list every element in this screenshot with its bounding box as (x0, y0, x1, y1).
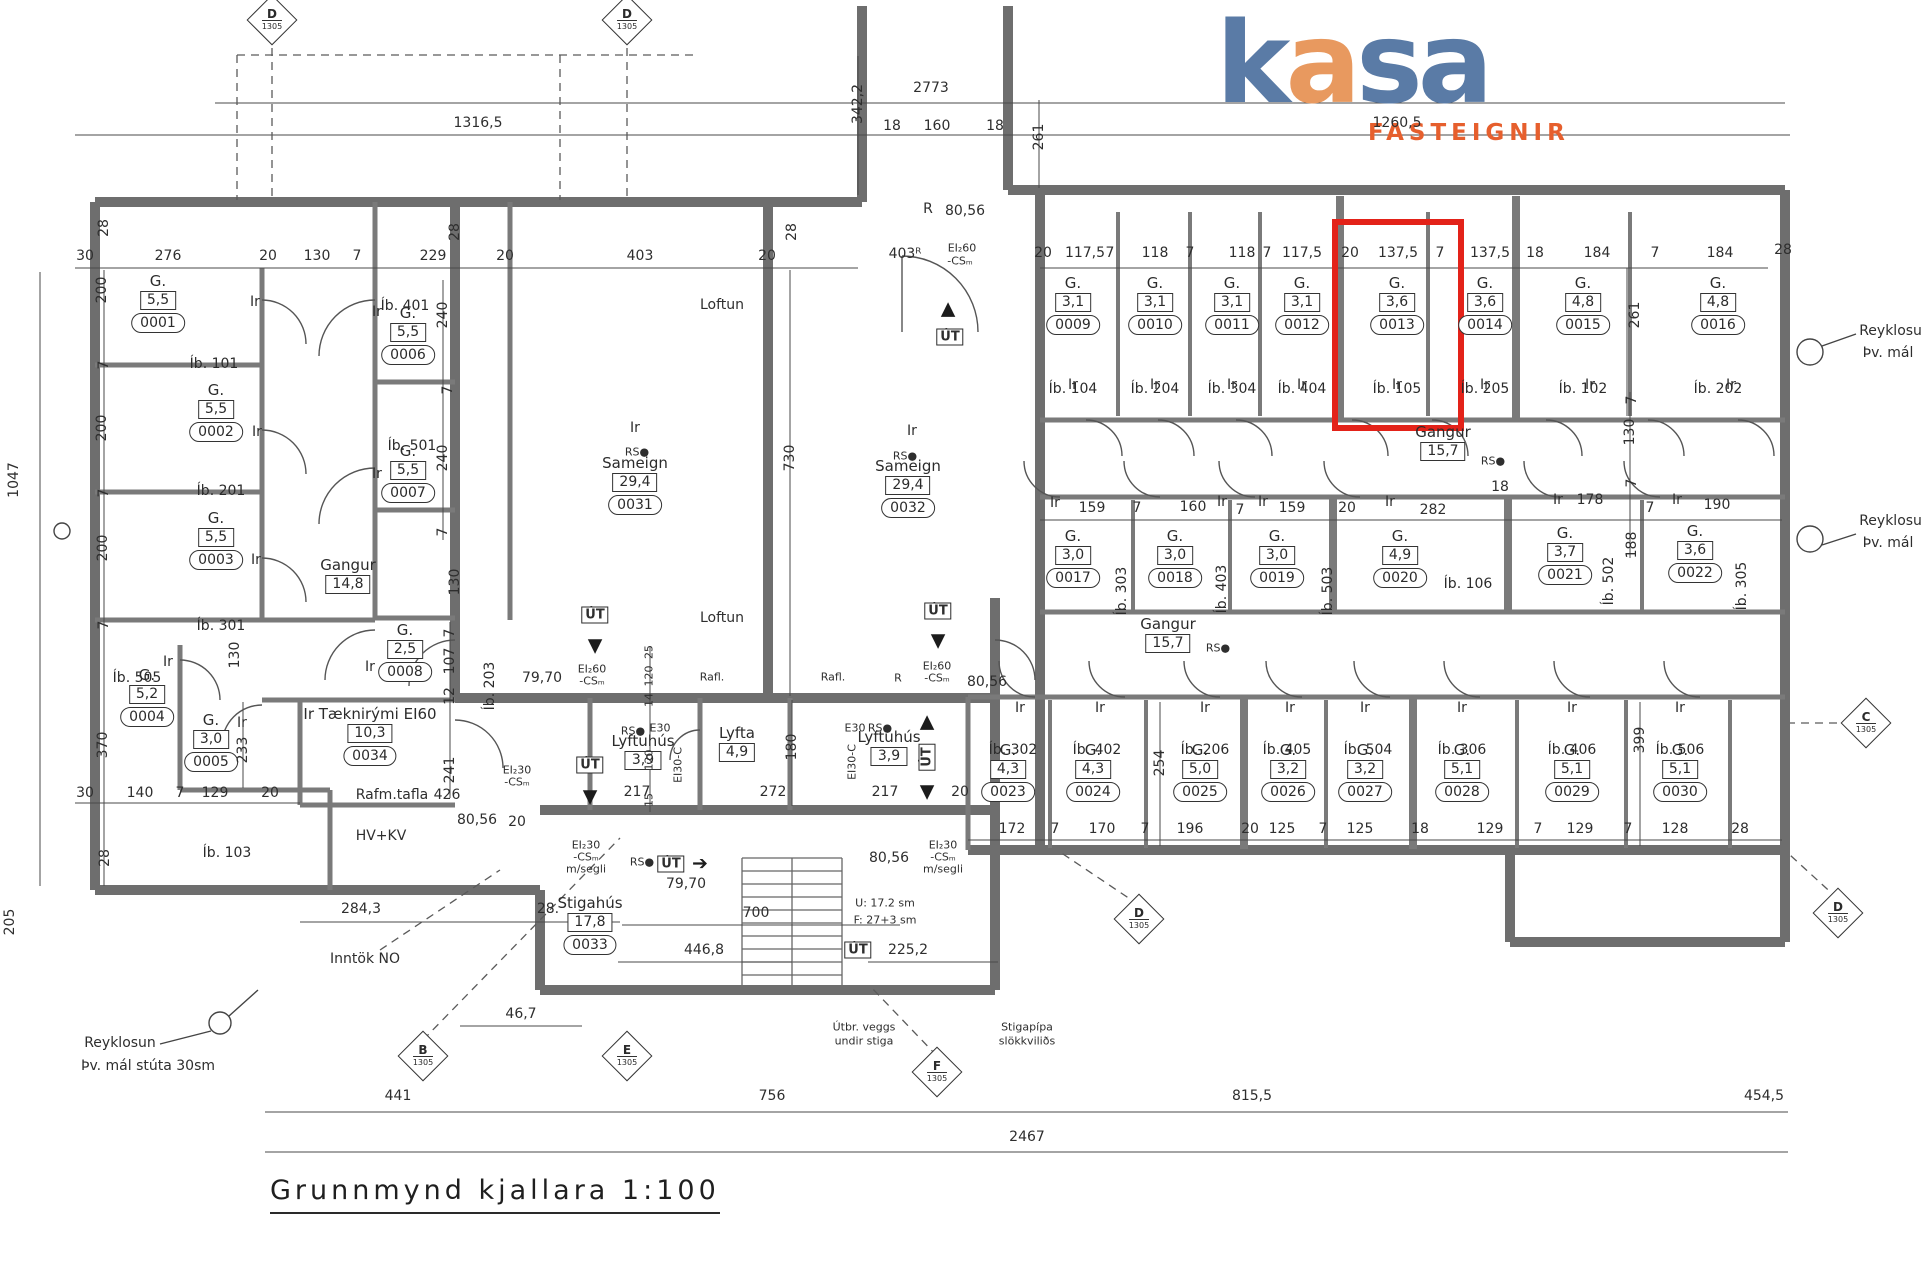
unit-sublabel: Íb. 206 (1181, 742, 1230, 758)
dimension-label: 180 (785, 734, 799, 761)
dimension-label: 25 (644, 645, 655, 659)
stair-treads (742, 858, 842, 985)
dimension-label: 30 (76, 786, 94, 800)
unit-sublabel: 0010 (1128, 315, 1182, 335)
unit-sublabel: 5,5 (390, 461, 426, 480)
unit-sublabel: Íb. 401 (381, 298, 430, 314)
annotation-label: ▼ (931, 632, 946, 651)
dimension-label: 15 (644, 793, 655, 807)
unit-sublabel: G. (131, 274, 185, 289)
marker-text: B1305 (406, 1039, 440, 1073)
dimension-label: 200 (95, 415, 109, 442)
dimension-label: 7 (1646, 501, 1655, 515)
annotation-label: -CSₘ (573, 852, 599, 863)
unit-sublabel: 0012 (1275, 315, 1329, 335)
dimension-label: 7 (1133, 501, 1142, 515)
annotation-label: Rafm.tafla (356, 788, 428, 802)
storage-unit-0023: G.4,30023Íb. 302 (981, 743, 1035, 802)
annotation-label: Inntök NO (330, 952, 400, 966)
dimension-label: 18 (986, 119, 1004, 133)
annotation-label: -CSₘ (579, 676, 605, 687)
marker-text: 1305 (927, 1072, 947, 1083)
dimension-label: 240 (436, 445, 450, 472)
annotation-label: E30 (845, 723, 866, 734)
dimension-label: 205 (3, 909, 17, 936)
storage-unit-0002: G.5,50002Íb. 201 (189, 383, 243, 442)
unit-sublabel: Íb. 503 (1320, 566, 1336, 615)
exit-label: ÚT (657, 856, 684, 873)
dimension-label: 178 (1577, 493, 1604, 507)
logo-letter: k (1216, 0, 1285, 129)
dimension-label: 7 (1106, 246, 1115, 260)
annotation-label: R (923, 202, 933, 216)
annotation-label: RS● (630, 857, 654, 868)
zone-sublabel: 17,8 (567, 913, 612, 932)
dimension-label: 80,56 (967, 675, 1007, 689)
unit-sublabel: Íb. 101 (190, 356, 239, 372)
annotation-label: ▲ (920, 713, 935, 732)
dimension-label: 229 (420, 249, 447, 263)
marker-text: D (622, 9, 632, 20)
annotation-label: Reyklosun (1859, 324, 1921, 338)
annotation-label: EI30-C (673, 747, 684, 783)
dimension-label: 118 (1142, 246, 1169, 260)
dimension-label: 18 (883, 119, 901, 133)
annotation-label: Reyklosun (84, 1036, 156, 1050)
dimension-label: 120 (644, 750, 655, 771)
dimension-label: 46,7 (505, 1007, 536, 1021)
marker-text: 1305 (617, 1056, 637, 1067)
annotation-label: EI₂60 (578, 664, 607, 675)
exit-label: ÚT (924, 603, 951, 620)
exit-label: ÚT (576, 757, 603, 774)
unit-sublabel: 3,0 (1157, 546, 1193, 565)
unit-sublabel: G. (1046, 276, 1100, 291)
unit-sublabel: Íb. 502 (1601, 556, 1617, 605)
storage-unit-0005: G.3,00005Íb. 103 (184, 713, 238, 772)
ir-mark: Ir (1457, 701, 1467, 715)
zone-sublabel: Ir Tæknirými EI60 (303, 706, 436, 722)
unit-sublabel: Íb. 406 (1548, 742, 1597, 758)
storage-unit-0009: G.3,10009Íb. 104 (1046, 276, 1100, 335)
dimension-label: 79,70 (522, 671, 562, 685)
ir-mark: Ir (1285, 701, 1295, 715)
dimension-label: 12 (443, 687, 457, 705)
dimension-label: 7 (1624, 822, 1633, 836)
dimension-label: 130 (304, 249, 331, 263)
unit-sublabel: 3,1 (1214, 293, 1250, 312)
unit-sublabel: 0023 (981, 782, 1035, 802)
dimension-label: 117,5 (1282, 246, 1322, 260)
unit-sublabel: Íb. 504 (1344, 742, 1393, 758)
annotation-label: EI₂30 (929, 840, 958, 851)
ir-mark: Ir (163, 655, 173, 669)
annotation-label: RS● (625, 447, 649, 458)
storage-unit-0022: G.3,60022Íb. 305 (1668, 524, 1722, 583)
marker-text: D1305 (1122, 902, 1156, 936)
unit-sublabel: G. (189, 383, 243, 398)
storage-unit-0030: G.5,10030Íb. 506 (1653, 743, 1707, 802)
unit-sublabel: G. (1250, 529, 1304, 544)
storage-unit-0026: G.3,20026Íb. 405 (1261, 743, 1315, 802)
zone-stigah-s-0033: Stigahús17,80033 (557, 895, 622, 955)
unit-sublabel: 0020 (1373, 568, 1427, 588)
unit-sublabel: 0002 (189, 422, 243, 442)
unit-sublabel: 0022 (1668, 563, 1722, 583)
ir-mark: Ir (251, 553, 261, 567)
dimension-label: 200 (96, 535, 110, 562)
zone-sublabel: 4,9 (719, 743, 755, 762)
storage-unit-0024: G.4,30024Íb. 402 (1066, 743, 1120, 802)
marker-text: C1305 (1849, 706, 1883, 740)
dimension-label: 7 (353, 249, 362, 263)
logo-letter: a (1285, 0, 1356, 129)
unit-sublabel: G. (1046, 529, 1100, 544)
logo-letter: s (1356, 0, 1418, 129)
unit-sublabel: 0008 (378, 662, 432, 682)
storage-unit-0025: G.5,00025Íb. 206 (1173, 743, 1227, 802)
dimension-label: 276 (155, 249, 182, 263)
unit-sublabel: 0014 (1458, 315, 1512, 335)
dimension-label: 129 (1477, 822, 1504, 836)
exit-label: ÚT (581, 607, 608, 624)
unit-sublabel: 3,0 (1055, 546, 1091, 565)
unit-sublabel: Íb. 403 (1214, 564, 1230, 613)
unit-sublabel: 0005 (184, 752, 238, 772)
dimension-label: 184 (1707, 246, 1734, 260)
exit-label: ÚT (844, 942, 871, 959)
dimension-label: 7 (97, 361, 111, 370)
ir-mark: Ir (1585, 378, 1595, 392)
dimension-label: 282 (1420, 503, 1447, 517)
dimension-label: 217 (872, 785, 899, 799)
dimension-label: 399 (1633, 727, 1647, 754)
unit-sublabel: 0013 (1370, 315, 1424, 335)
unit-sublabel: 3,1 (1284, 293, 1320, 312)
annotation-label: RS● (1206, 643, 1230, 654)
zone-sameign-0031: Sameign29,40031 (602, 455, 668, 515)
zone-sameign-0032: Sameign29,40032 (875, 458, 941, 518)
dimension-label: 233 (236, 737, 250, 764)
unit-sublabel: G. (1668, 524, 1722, 539)
annotation-label: RS● (1481, 456, 1505, 467)
dimension-label: 20 (951, 785, 969, 799)
ir-mark: Ir (250, 295, 260, 309)
marker-text: F (933, 1061, 941, 1072)
annotation-label: m/segli (566, 864, 606, 875)
unit-sublabel: Íb. 303 (1114, 566, 1130, 615)
storage-unit-0001: G.5,50001Íb. 101 (131, 274, 185, 333)
unit-sublabel: 4,8 (1700, 293, 1736, 312)
annotation-label: U: 17.2 sm (855, 898, 915, 909)
unit-sublabel: 4,8 (1565, 293, 1601, 312)
ir-mark: Ir (252, 425, 262, 439)
marker-text: 1305 (1129, 919, 1149, 930)
unit-sublabel: 0019 (1250, 568, 1304, 588)
unit-sublabel: 5,5 (140, 291, 176, 310)
annotation-label: Útbr. veggs (833, 1022, 896, 1033)
dimension-label: 28 (1774, 243, 1792, 257)
dimension-label: 7 (1625, 479, 1639, 488)
zone-gangur: Gangur15,7 (1415, 424, 1471, 461)
dimension-label: 7 (436, 528, 450, 537)
ir-mark: Ir (365, 660, 375, 674)
ir-mark: Ir (630, 421, 640, 435)
unit-sublabel: 3,6 (1379, 293, 1415, 312)
marker-text: 1305 (262, 20, 282, 31)
dimension-label: 1047 (7, 462, 21, 498)
ir-mark: Ir (1227, 378, 1237, 392)
ir-mark: Ir (1217, 495, 1227, 509)
annotation-label: Rafl. (821, 672, 846, 683)
dimension-label: 28 (1731, 822, 1749, 836)
unit-sublabel: G. (189, 511, 243, 526)
unit-sublabel: 0017 (1046, 568, 1100, 588)
unit-sublabel: 5,5 (198, 528, 234, 547)
storage-unit-0020: G.4,90020Íb. 106 (1373, 529, 1427, 588)
ir-mark: Ir (907, 424, 917, 438)
annotation-label: EI₂60 (923, 661, 952, 672)
marker-text: F1305 (920, 1055, 954, 1089)
annotation-label: Reyklosun (1859, 514, 1921, 528)
zone-sublabel: 10,3 (347, 724, 392, 743)
annotation-label: -CSₘ (930, 852, 956, 863)
annotation-label: ▲ (941, 300, 956, 319)
annotation-label: ▼ (920, 783, 935, 802)
dimension-label: 170 (1089, 822, 1116, 836)
dimension-label: 140 (127, 786, 154, 800)
unit-sublabel: 0021 (1538, 565, 1592, 585)
marker-text: E1305 (610, 1039, 644, 1073)
dimension-label: 254 (1153, 750, 1167, 777)
unit-sublabel: 0027 (1338, 782, 1392, 802)
dimension-label: 730 (783, 445, 797, 472)
unit-sublabel: 3,1 (1055, 293, 1091, 312)
ir-mark: Ir (372, 305, 382, 319)
dimension-label: 7 (443, 629, 457, 638)
dimension-label: 120 (644, 666, 655, 687)
unit-sublabel: Íb. 405 (1263, 742, 1312, 758)
zone-sublabel: 15,7 (1420, 442, 1465, 461)
storage-unit-0017: G.3,00017Íb. 303 (1046, 529, 1100, 588)
dimension-label: 7 (1141, 822, 1150, 836)
dimension-label: 261 (1032, 124, 1046, 151)
unit-sublabel: 0018 (1148, 568, 1202, 588)
dimension-label: 700 (743, 906, 770, 920)
annotation-label: undir stiga (835, 1036, 894, 1047)
dimension-label: 137,5 (1470, 246, 1510, 260)
unit-sublabel: Íb. 102 (1559, 381, 1608, 397)
unit-sublabel: 5,1 (1662, 760, 1698, 779)
storage-unit-0016: G.4,80016Íb. 202 (1691, 276, 1745, 335)
ir-mark: Ir (1360, 701, 1370, 715)
annotation-label: ▼ (588, 637, 603, 656)
dimension-label: 7 (441, 386, 455, 395)
dimension-label: 28. (537, 902, 559, 916)
annotation-label: EI30-C (847, 744, 858, 780)
dimension-label: 20 (1338, 501, 1356, 515)
ir-mark: Ir (1567, 701, 1577, 715)
marker-text: D1305 (1821, 896, 1855, 930)
dimension-label: 7 (1051, 822, 1060, 836)
dimension-label: 240 (436, 302, 450, 329)
zone-sublabel: 0032 (881, 498, 935, 518)
unit-sublabel: Íb. 301 (197, 618, 246, 634)
unit-sublabel: 2,5 (387, 640, 423, 659)
storage-unit-0008: G.2,50008Íb. 203 (378, 623, 432, 682)
unit-sublabel: 3,2 (1347, 760, 1383, 779)
dimension-label: 196 (1177, 822, 1204, 836)
zone-ir-t-knir-mi-ei60-0034: Ir Tæknirými EI6010,30034 (303, 706, 436, 766)
ir-mark: Ir (372, 467, 382, 481)
unit-sublabel: 3,0 (193, 730, 229, 749)
unit-sublabel: G. (1691, 276, 1745, 291)
dimension-label: 18 (1491, 480, 1509, 494)
annotation-label: Stigapípa (1001, 1022, 1053, 1033)
storage-unit-0027: G.3,20027Íb. 504 (1338, 743, 1392, 802)
unit-sublabel: 0026 (1261, 782, 1315, 802)
ir-mark: Ir (1200, 701, 1210, 715)
dimension-label: 20 (508, 815, 526, 829)
dimension-label: 20 (496, 249, 514, 263)
unit-sublabel: Íb. 201 (197, 483, 246, 499)
dimension-label: 20 (1241, 822, 1259, 836)
zone-sublabel: 0034 (343, 746, 397, 766)
unit-sublabel: 3,0 (1259, 546, 1295, 565)
ir-mark: Ir (1392, 378, 1402, 392)
annotation-label: ➔ (692, 855, 708, 874)
unit-sublabel: G. (1205, 276, 1259, 291)
unit-sublabel: G. (184, 713, 238, 728)
dimension-label: 125 (1269, 822, 1296, 836)
zone-sublabel: Lyfta (719, 725, 755, 741)
zone-sublabel: 15,7 (1145, 634, 1190, 653)
dimension-label: 172 (999, 822, 1026, 836)
dimension-label: 200 (95, 277, 109, 304)
ir-mark: Ir (1726, 378, 1736, 392)
dimension-label: 272 (760, 785, 787, 799)
dimension-label: 7 (1436, 246, 1445, 260)
ir-mark: Ir (1150, 378, 1160, 392)
dimension-label: 18 (1411, 822, 1429, 836)
annotation-label: E30 (650, 723, 671, 734)
dimension-label: 7 (176, 786, 185, 800)
dimension-label: 20 (1341, 246, 1359, 260)
ir-mark: Ir (1672, 493, 1682, 507)
unit-sublabel: 0001 (131, 313, 185, 333)
storage-unit-0011: G.3,10011Íb. 304 (1205, 276, 1259, 335)
annotation-label: Loftun (700, 298, 744, 312)
annotation-label: Þv. mál stúta 30sm (81, 1059, 215, 1073)
unit-sublabel: 5,2 (129, 685, 165, 704)
annotation-label: EI₂60 (948, 243, 977, 254)
zone-sublabel: 3,9 (871, 747, 907, 766)
dimension-label: 403 (627, 249, 654, 263)
annotation-label: RS● (893, 451, 917, 462)
dimension-label: 7 (1319, 822, 1328, 836)
dimension-label: 130 (228, 642, 242, 669)
dimension-label: 2467 (1009, 1130, 1045, 1144)
zone-sublabel: 14,8 (325, 575, 370, 594)
drawing-title: Grunnmynd kjallara 1:100 (270, 1175, 720, 1214)
dimension-label: 125 (1347, 822, 1374, 836)
annotation-label: Loftun (700, 611, 744, 625)
dimension-label: 7 (97, 621, 111, 630)
unit-sublabel: 0025 (1173, 782, 1227, 802)
annotation-label: EI₂30 (572, 840, 601, 851)
ir-mark: Ir (1050, 496, 1060, 510)
zone-sublabel: 29,4 (612, 473, 657, 492)
dimension-label: 28 (97, 219, 111, 237)
kasa-logo: kasa (1216, 14, 1488, 115)
unit-sublabel: 5,5 (390, 323, 426, 342)
dimension-label: 7 (1186, 246, 1195, 260)
unit-sublabel: G. (1373, 529, 1427, 544)
dimension-label: 446,8 (684, 943, 724, 957)
annotation-label: ▼ (583, 788, 598, 807)
dimension-label: 20 (259, 249, 277, 263)
logo-letter: a (1418, 0, 1489, 129)
floorplan-linework (0, 0, 1921, 1280)
unit-sublabel: Íb. 501 (388, 438, 437, 454)
dimension-label: 129 (202, 786, 229, 800)
annotation-label: m/segli (923, 864, 963, 875)
exit-label: ÚT (936, 329, 963, 346)
zone-lyftuh-s: Lyftuhús3,9 (857, 729, 920, 766)
zone-sublabel: Stigahús (557, 895, 622, 911)
zone-sublabel: Gangur (320, 557, 376, 573)
annotation-label: HV+KV (356, 829, 407, 843)
unit-sublabel: Íb. 302 (989, 742, 1038, 758)
unit-sublabel: 0004 (120, 707, 174, 727)
unit-sublabel: 0016 (1691, 315, 1745, 335)
dimension-label: 184 (1584, 246, 1611, 260)
annotation-label: -CSₘ (504, 777, 530, 788)
unit-sublabel: 0009 (1046, 315, 1100, 335)
annotation-label: R (894, 673, 902, 684)
marker-text: D1305 (610, 3, 644, 37)
dimension-label: 30 (76, 249, 94, 263)
zone-sublabel: 0033 (563, 935, 617, 955)
dimension-label: 7 (1236, 503, 1245, 517)
marker-text: D1305 (255, 3, 289, 37)
dimension-label: 1316,5 (454, 116, 503, 130)
dimension-label: 28 (785, 223, 799, 241)
dimension-label: 7 (1625, 396, 1639, 405)
dimension-label: 79,70 (666, 877, 706, 891)
unit-sublabel: G. (1538, 526, 1592, 541)
dimension-label: 117,5 (1065, 246, 1105, 260)
storage-unit-0018: G.3,00018Íb. 403 (1148, 529, 1202, 588)
unit-sublabel: 0007 (381, 483, 435, 503)
annotation-label: RS● (621, 726, 645, 737)
marker-text: 1305 (1856, 723, 1876, 734)
unit-sublabel: 5,1 (1444, 760, 1480, 779)
marker-text: D (1833, 902, 1843, 913)
dimension-label: 1260,5 (1373, 116, 1422, 130)
storage-unit-0003: G.5,50003Íb. 301 (189, 511, 243, 570)
zone-sublabel: Gangur (1415, 424, 1471, 440)
annotation-label: Þv. mál (1863, 536, 1914, 550)
unit-sublabel: 0011 (1205, 315, 1259, 335)
annotation-label: Þv. mál (1863, 346, 1914, 360)
zone-sublabel: Gangur (1140, 616, 1196, 632)
unit-sublabel: G. (1275, 276, 1329, 291)
ir-mark: Ir (1095, 701, 1105, 715)
ir-mark: Ir (237, 716, 247, 730)
dimension-label: 130 (1623, 419, 1637, 446)
annotation-label: -CSₘ (947, 256, 973, 267)
